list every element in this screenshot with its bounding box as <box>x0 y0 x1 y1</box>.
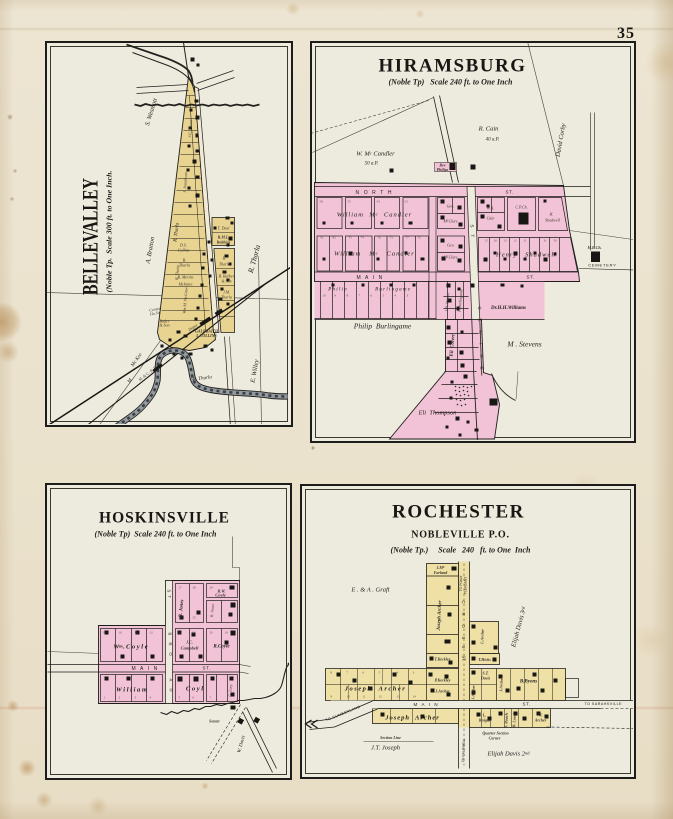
svg-text:(Noble Tp) Scale 240 ft. to O: (Noble Tp) Scale 240 ft. to One Inch <box>95 530 218 539</box>
svg-text:25: 25 <box>193 616 197 620</box>
svg-text:12: 12 <box>150 631 154 635</box>
svg-text:21: 21 <box>193 631 197 635</box>
svg-text:HIRAMSBURG: HIRAMSBURG <box>378 56 526 77</box>
svg-text:B u r l i n g a m e: B u r l i n g a m e <box>375 288 411 293</box>
svg-text:15: 15 <box>485 239 489 243</box>
svg-text:Joseph Archer: Joseph Archer <box>344 686 407 693</box>
svg-text:58: 58 <box>320 200 324 204</box>
svg-text:S: S <box>167 589 172 592</box>
svg-text:L.Archer: L.Archer <box>479 628 485 645</box>
svg-text:M A I N: M A I N <box>132 666 159 672</box>
svg-text:B: B <box>168 632 173 635</box>
svg-text:16: 16 <box>494 239 498 243</box>
svg-text:Robbins: Robbins <box>217 240 231 245</box>
svg-text:(Noble Tp. Scale 300 ft. to O: (Noble Tp. Scale 300 ft. to One Inch. <box>106 170 114 292</box>
svg-text:M . Stevens: M . Stevens <box>506 340 541 349</box>
svg-text:Section Line: Section Line <box>380 735 401 740</box>
svg-text:11: 11 <box>135 631 138 635</box>
svg-text:11: 11 <box>363 695 366 699</box>
svg-text:92: 92 <box>333 236 337 240</box>
svg-text:N: N <box>478 330 483 333</box>
svg-text:E: E <box>478 318 483 321</box>
svg-text:50: 50 <box>554 239 558 243</box>
svg-text:ST.: ST. <box>203 666 211 671</box>
svg-text:H.: H. <box>549 212 554 217</box>
svg-text:77: 77 <box>406 236 410 240</box>
svg-text:Tharla: Tharla <box>219 262 230 267</box>
svg-text:William Mc Candler: William Mc Candler <box>334 250 415 258</box>
svg-text:Joseph Archer: Joseph Archer <box>384 715 440 722</box>
svg-text:26: 26 <box>179 616 183 620</box>
svg-text:E . & A . Graft: E . & A . Graft <box>350 587 389 594</box>
svg-text:14: 14 <box>413 695 417 699</box>
svg-text:L.COLLINS: L.COLLINS <box>195 333 217 338</box>
svg-text:50 a.P.: 50 a.P. <box>365 162 379 167</box>
svg-text:D: D <box>169 688 174 691</box>
svg-text:(Noble Tp.) Scale 240: (Noble Tp.) Scale 240 ft. to One Inch <box>391 546 532 555</box>
svg-text:75: 75 <box>349 236 353 240</box>
svg-text:C o y l: C o y l <box>186 686 203 693</box>
svg-text:Davis: Davis <box>480 676 491 681</box>
svg-text:S. Westcott: S. Westcott <box>144 97 159 126</box>
svg-text:R.Coyle: R.Coyle <box>213 645 230 650</box>
svg-text:T. Deal: T. Deal <box>218 226 231 231</box>
svg-text:31: 31 <box>544 239 548 243</box>
svg-text:T: T <box>479 342 484 345</box>
svg-text:Dr.H.H.Williams: Dr.H.H.Williams <box>490 306 526 311</box>
svg-text:William Mc Candler: William Mc Candler <box>337 211 412 219</box>
svg-text:Coyle: Coyle <box>215 593 226 598</box>
svg-text:13: 13 <box>504 239 508 243</box>
svg-text:T.Keckley: T.Keckley <box>435 657 451 662</box>
svg-text:R. Cain: R. Cain <box>478 126 499 133</box>
svg-text:76: 76 <box>378 236 382 240</box>
svg-text:19: 19 <box>225 631 229 635</box>
svg-text:Geo: Geo <box>447 243 454 248</box>
svg-text:N O R T H: N O R T H <box>356 190 394 196</box>
svg-text:ST.: ST. <box>523 702 531 707</box>
svg-text:54: 54 <box>377 200 381 204</box>
svg-text:J.Archer: J.Archer <box>470 685 476 701</box>
svg-text:13: 13 <box>397 695 401 699</box>
svg-text:55: 55 <box>348 200 352 204</box>
svg-text:B. Merritt: B. Merritt <box>178 275 195 280</box>
svg-text:David Corby: David Corby <box>554 123 567 159</box>
svg-text:12: 12 <box>514 239 518 243</box>
svg-text:10: 10 <box>323 294 327 298</box>
svg-text:ST.: ST. <box>461 655 466 661</box>
svg-text:Knight: Knight <box>478 718 491 723</box>
svg-text:10: 10 <box>347 695 351 699</box>
svg-text:NOBLEVILLE P.O.: NOBLEVILLE P.O. <box>411 530 510 541</box>
svg-text:73: 73 <box>390 236 394 240</box>
svg-text:S: S <box>461 636 466 639</box>
svg-text:74: 74 <box>361 236 365 240</box>
svg-text:53: 53 <box>405 200 409 204</box>
svg-text:P.Keckley: P.Keckley <box>435 678 451 683</box>
svg-text:TO SARAHSVILLE: TO SARAHSVILLE <box>585 702 623 706</box>
svg-text:Tharla: Tharla <box>221 295 232 300</box>
svg-text:J. Roach: J. Roach <box>503 712 509 729</box>
svg-text:22: 22 <box>179 631 183 635</box>
svg-text:& Son: & Son <box>221 279 231 284</box>
svg-text:A: A <box>169 678 174 681</box>
svg-text:52: 52 <box>440 200 444 204</box>
svg-text:Philips: Philips <box>437 167 449 172</box>
svg-text:Elijah Davis 2nd: Elijah Davis 2nd <box>486 750 530 758</box>
svg-text:72: 72 <box>418 236 422 240</box>
svg-text:B. Lovel: B. Lovel <box>511 713 517 729</box>
svg-text:Wm. C o y l e: Wm. C o y l e <box>113 643 147 651</box>
svg-text:A. Bratton: A. Bratton <box>145 236 157 265</box>
svg-text:S: S <box>470 224 475 227</box>
svg-text:(Noble Tp) Scale 240 ft. to: (Noble Tp) Scale 240 ft. to One Inch <box>389 78 514 87</box>
svg-text:ST.: ST. <box>506 190 514 195</box>
svg-text:R: R <box>461 612 466 615</box>
svg-text:C: C <box>461 600 466 603</box>
svg-text:40 a.P.: 40 a.P. <box>486 138 500 143</box>
svg-text:CEMETERY: CEMETERY <box>588 263 617 268</box>
svg-text:Henry Shadwell: Henry Shadwell <box>495 252 557 259</box>
svg-text:HOSKINSVILLE: HOSKINSVILLE <box>99 510 230 527</box>
svg-text:McIntire: McIntire <box>178 282 193 287</box>
svg-text:J.Archer: J.Archer <box>498 677 504 693</box>
svg-text:Campbell: Campbell <box>181 646 199 651</box>
svg-text:S: S <box>461 645 466 648</box>
svg-text:J.T. Joseph: J.T. Joseph <box>371 745 400 752</box>
svg-text:E: E <box>480 366 485 369</box>
svg-text:PLEASANT: PLEASANT <box>463 577 468 595</box>
svg-text:Collins: Collins <box>178 248 190 253</box>
svg-text:W.B.: W.B. <box>487 206 494 211</box>
svg-text:Tharla: Tharla <box>179 263 190 268</box>
svg-text:Philip Burlingame: Philip Burlingame <box>353 322 412 331</box>
svg-text:91: 91 <box>321 236 325 240</box>
svg-text:McClure: McClure <box>442 253 457 259</box>
svg-text:W. Davis: W. Davis <box>237 735 246 754</box>
svg-text:Archer: Archer <box>534 718 547 723</box>
svg-text:BELLEVALLEY: BELLEVALLEY <box>78 178 103 295</box>
svg-text:12: 12 <box>379 695 383 699</box>
svg-text:E. Willey: E. Willey <box>249 359 260 384</box>
svg-text:Shadwell: Shadwell <box>545 218 561 223</box>
svg-text:M A I N: M A I N <box>414 702 440 707</box>
svg-text:J.C.: J.C. <box>185 640 193 645</box>
svg-text:Cain: Cain <box>487 216 495 221</box>
svg-text:28: 28 <box>193 586 197 590</box>
svg-text:TO CALDWELL: TO CALDWELL <box>461 738 466 762</box>
svg-text:T: T <box>470 234 475 237</box>
svg-text:J.Archer: J.Archer <box>434 689 450 694</box>
svg-text:M.E.Ch.: M.E.Ch. <box>586 245 601 250</box>
svg-text:ROCHESTER: ROCHESTER <box>392 502 525 523</box>
svg-text:W i l l i a m: W i l l i a m <box>116 687 147 694</box>
svg-text:11: 11 <box>524 239 527 243</box>
svg-text:ST.: ST. <box>527 275 535 280</box>
svg-text:10: 10 <box>119 631 123 635</box>
svg-text:R: R <box>168 642 173 645</box>
svg-text:B.: B. <box>223 256 226 261</box>
svg-text:R. Tharla: R. Tharla <box>246 244 262 275</box>
svg-text:& Son: & Son <box>159 323 169 328</box>
svg-text:27: 27 <box>179 586 183 590</box>
svg-text:Farland: Farland <box>434 570 449 575</box>
svg-text:M A I N: M A I N <box>357 275 384 281</box>
svg-text:Elijah Davis 3rd: Elijah Davis 3rd <box>510 605 528 649</box>
svg-text:T.Hicks: T.Hicks <box>478 657 491 662</box>
svg-text:Corner: Corner <box>489 736 501 741</box>
svg-text:Senter: Senter <box>209 719 220 724</box>
svg-text:B.Byons: B.Byons <box>519 680 537 685</box>
svg-text:29: 29 <box>210 586 214 590</box>
svg-text:Eli Thompson: Eli Thompson <box>418 410 457 417</box>
svg-text:C.P.Ch.: C.P.Ch. <box>515 205 527 210</box>
svg-text:W. Mc Candler: W. Mc Candler <box>356 150 395 158</box>
svg-text:Geo.: Geo. <box>447 204 455 209</box>
svg-text:20: 20 <box>210 631 214 635</box>
svg-text:P h i l i p: P h i l i p <box>327 288 347 293</box>
svg-text:McClure: McClure <box>442 217 457 223</box>
